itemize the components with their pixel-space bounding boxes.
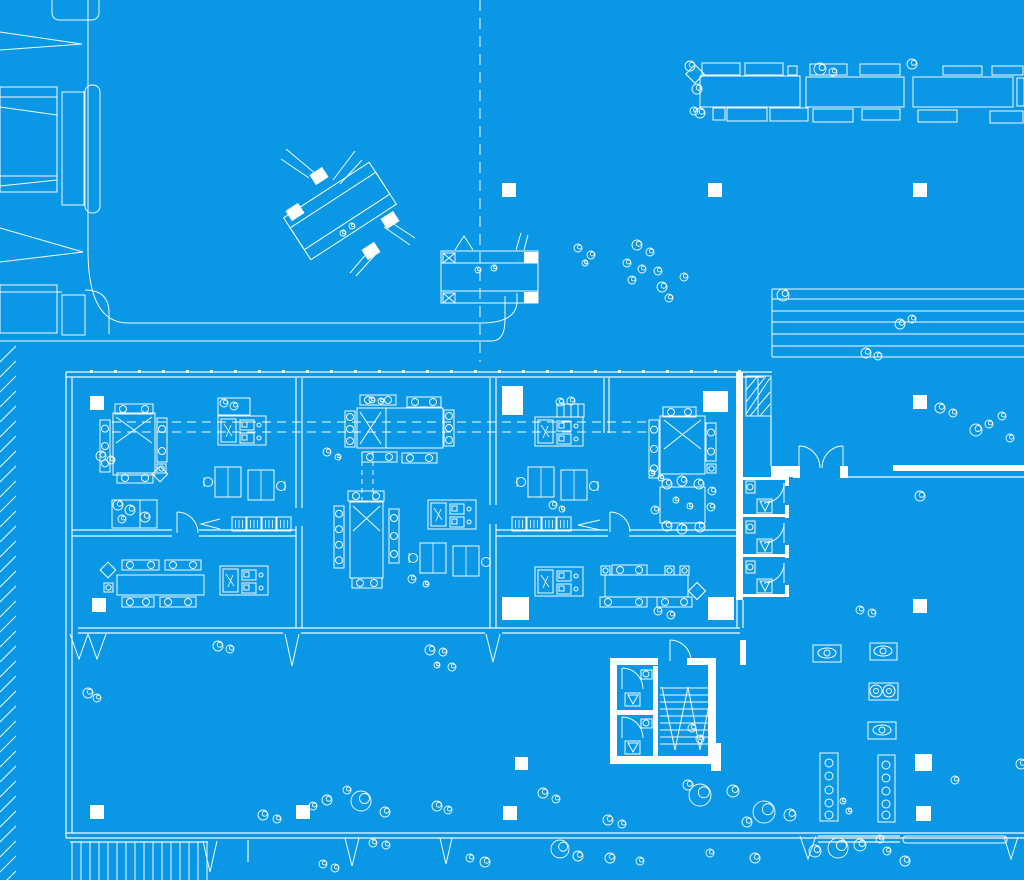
layer-wc-door-arcs: [764, 523, 784, 543]
layer-core-walls: [502, 597, 529, 620]
layer-chair-strips: [347, 414, 354, 421]
layer-trees: [322, 861, 326, 865]
layer-benches: [143, 599, 150, 606]
layer-trees: [832, 69, 836, 73]
layer-desk-units: [467, 507, 471, 511]
layer-benches: [636, 599, 643, 606]
layer-trees: [690, 504, 693, 507]
layer-left-edge-hatch: [0, 571, 16, 587]
layer-wall-ticks: [522, 370, 525, 373]
layer-trees: [843, 799, 846, 802]
layer-planter-rects: [713, 108, 725, 120]
layer-planter-rects: [745, 63, 783, 75]
layer-trees: [683, 274, 687, 278]
layer-trees: [699, 523, 704, 528]
layer-trees: [954, 777, 958, 781]
layer-benches: [127, 599, 134, 606]
layer-trees: [631, 277, 635, 281]
layer-trees: [96, 695, 100, 699]
layer-wall-ticks: [618, 370, 621, 373]
layer-stair-hatch-lines: [760, 404, 770, 416]
layer-rotated-picnic-legs: [286, 149, 316, 174]
layer-core-walls: [893, 465, 1024, 471]
layer-trees: [639, 858, 643, 862]
layer-trees: [542, 789, 547, 794]
layer-door-wedges: [201, 519, 220, 529]
layer-benches: [426, 455, 433, 462]
layer-left-edge-hatch: [0, 751, 16, 767]
layer-left-edge-hatch: [0, 856, 16, 872]
layer-left-edge-hatch: [0, 451, 16, 467]
layer-trees: [384, 808, 389, 813]
layer-columns: [502, 183, 516, 197]
layer-benches: [681, 599, 688, 606]
layer-trees: [904, 857, 909, 862]
layer-left-edge-hatch: [0, 706, 16, 722]
layer-wall-ticks: [402, 370, 405, 373]
layer-left-edge-hatch: [0, 736, 16, 752]
layer-single-seats: [603, 568, 608, 573]
layer-desk-units: [259, 586, 263, 590]
layer-columns: [913, 183, 927, 197]
layer-single-seats: [106, 585, 111, 590]
layer-wall-ticks: [450, 370, 453, 373]
layer-desk-units: [452, 519, 457, 524]
layer-rack-circles: [882, 787, 890, 795]
layer-trees: [1001, 413, 1005, 417]
layer-rack-circles: [882, 811, 890, 819]
layer-core-walls: [840, 466, 848, 478]
layer-chair-strips: [446, 413, 453, 420]
layer-wall-ticks: [282, 370, 285, 373]
layer-desk-units: [244, 585, 249, 590]
layer-table-rects: [117, 575, 204, 595]
layer-chair-strips: [336, 541, 343, 548]
layer-desk-units: [574, 587, 578, 591]
layer-left-edge-hatch: [0, 796, 16, 812]
layer-trees: [577, 245, 581, 249]
layer-desk-units: [226, 425, 231, 437]
layer-trees: [372, 840, 376, 844]
layer-trees: [346, 787, 350, 791]
layer-truck-lines: [0, 180, 57, 186]
layer-trees: [636, 241, 641, 246]
layer-wc-door-arcs: [764, 563, 784, 583]
layer-trees: [129, 506, 134, 511]
layer-trees: [552, 502, 556, 506]
layer-benches: [373, 493, 380, 500]
layer-columns: [296, 805, 310, 819]
layer-rotated-picnic-legs: [340, 160, 362, 184]
layer-core-walls: [793, 466, 800, 478]
layer-chair-strips: [347, 426, 354, 433]
layer-wall-ticks: [354, 370, 357, 373]
layer-benches: [357, 580, 364, 587]
layer-wall-ticks: [90, 370, 93, 373]
layer-single-seats: [709, 466, 714, 471]
layer-rack-circles: [882, 800, 890, 808]
layer-rack-circles: [880, 648, 886, 654]
layer-core-walls: [771, 466, 795, 477]
layer-rack-circles: [825, 772, 833, 780]
layer-left-edge-hatch: [0, 616, 16, 632]
layer-trees: [609, 854, 614, 859]
layer-benches: [386, 454, 393, 461]
layer-wall-ticks: [666, 370, 669, 373]
layer-trees: [654, 507, 658, 511]
layer-truck-bodies: [62, 295, 85, 335]
layer-planter-rects: [806, 77, 904, 107]
layer-trees: [789, 811, 795, 817]
layer-benches: [636, 567, 643, 574]
layer-trees: [494, 266, 497, 269]
layer-left-edge-hatch: [0, 766, 16, 782]
layer-benches: [617, 567, 624, 574]
layer-table-rects: [660, 416, 705, 474]
layer-benches: [371, 580, 378, 587]
layer-benches: [122, 560, 159, 570]
layer-wall-ticks: [570, 370, 573, 373]
layer-picnic-legs: [455, 236, 473, 250]
layer-rack-circles: [887, 689, 892, 694]
layer-benches: [430, 399, 437, 406]
layer-entry-door-arcs: [799, 446, 820, 468]
layer-left-edge-hatch: [0, 811, 16, 827]
layer-planter-rects: [770, 108, 808, 121]
layer-truck-lines: [0, 228, 83, 252]
layer-benches: [160, 597, 196, 607]
layer-benches: [142, 406, 149, 413]
layer-trees: [681, 477, 686, 482]
layer-planter-rects: [813, 109, 853, 122]
layer-desk-units: [574, 424, 578, 428]
layer-wall-ticks: [690, 370, 693, 373]
layer-desk-units: [242, 435, 247, 440]
layer-trees: [849, 809, 852, 812]
layer-trees: [899, 320, 904, 325]
layer-trees: [754, 854, 759, 859]
layer-trees: [698, 480, 703, 485]
layer-planter-rects: [918, 110, 957, 122]
layer-desk-units: [257, 423, 261, 427]
layer-core-walls: [708, 597, 734, 620]
layer-chair-strips: [391, 515, 398, 522]
layer-door-v-marks: [1004, 837, 1018, 859]
layer-planter-ellipses: [883, 685, 895, 697]
layer-benches: [353, 493, 360, 500]
layer-trees: [577, 852, 582, 857]
layer-left-edge-hatch: [0, 496, 16, 512]
layer-rack-circles: [825, 799, 833, 807]
layer-stair-arrow: [662, 687, 712, 750]
layer-wall-ticks: [498, 370, 501, 373]
layer-wc-sink-circles: [643, 671, 649, 677]
layer-benches: [185, 599, 192, 606]
layer-door-v-marks: [70, 634, 88, 659]
layer-single-seats: [682, 568, 687, 573]
layer-stair-hatch-lines: [746, 376, 758, 390]
layer-table-rects: [112, 500, 157, 528]
layer-trees: [886, 848, 890, 852]
layer-chair-strips: [446, 425, 453, 432]
layer-left-edge-hatch: [0, 781, 16, 797]
layer-trees: [411, 576, 415, 580]
layer-truck-lines: [0, 107, 57, 115]
layer-wall-ticks: [114, 370, 117, 373]
layer-wall-ticks: [186, 370, 189, 373]
layer-desk-pairs: [277, 482, 286, 491]
layer-table-x-marks: [664, 420, 701, 449]
layer-trees: [551, 840, 569, 858]
layer-single-seats: [665, 566, 674, 575]
layer-left-edge-hatch: [0, 841, 16, 857]
layer-door-v-marks: [345, 838, 359, 866]
layer-left-edge-hatch: [0, 691, 16, 707]
layer-chair-strips: [336, 526, 343, 533]
layer-wall-ticks: [714, 370, 717, 373]
layer-trees: [939, 404, 944, 409]
layer-trees: [437, 663, 440, 666]
layer-benches: [165, 599, 172, 606]
layer-chair-strips: [336, 510, 343, 517]
layer-columns: [916, 806, 931, 821]
layer-road-curves: [0, 296, 505, 341]
layer-trees: [87, 689, 92, 694]
layer-rack-circles: [882, 761, 890, 769]
layer-trees: [911, 60, 916, 65]
layer-benches: [662, 599, 669, 606]
layer-table-x-marks: [443, 293, 455, 303]
layer-trees: [871, 610, 875, 614]
layer-planter-rects: [1017, 78, 1024, 106]
layer-benches: [142, 475, 149, 482]
layer-door-v-marks: [800, 836, 816, 859]
layer-core-walls: [703, 391, 728, 412]
layer-trees: [360, 794, 370, 804]
layer-wc-door-arcs: [622, 668, 643, 689]
layer-trees: [451, 664, 455, 668]
layer-wc-door-arcs: [764, 483, 784, 503]
layer-planter-rects: [990, 111, 1023, 123]
layer-desk-units: [574, 574, 578, 578]
layer-trees: [352, 224, 355, 227]
layer-trees: [699, 109, 704, 114]
layer-desk-pairs: [517, 478, 526, 487]
layer-trees: [661, 476, 664, 479]
layer-core-walls: [785, 545, 789, 558]
layer-chair-strips: [159, 426, 166, 433]
layer-trees: [1009, 435, 1013, 439]
layer-chair-strips: [159, 448, 166, 455]
layer-trees: [334, 865, 338, 869]
layer-trees: [100, 452, 105, 457]
layer-picnic-legs: [524, 235, 528, 250]
layer-trees: [676, 498, 679, 501]
layer-trees: [110, 457, 114, 461]
layer-benches: [407, 455, 414, 462]
layer-benches: [605, 599, 612, 606]
layer-left-edge-hatch: [0, 646, 16, 662]
layer-diamond-chairs: [100, 562, 116, 578]
layer-benches: [407, 397, 441, 407]
layer-left-edge-hatch: [0, 586, 16, 602]
layer-trees: [351, 791, 371, 811]
layer-wc-sink-circles: [747, 564, 753, 570]
layer-columns: [913, 395, 927, 409]
layer-columns: [515, 757, 528, 770]
layer-chair-strips: [708, 448, 715, 455]
layer-trees: [661, 283, 666, 288]
layer-door-v-marks: [486, 634, 500, 662]
layer-benches: [685, 409, 692, 416]
layer-chair-strips: [102, 425, 109, 432]
layer-trees: [782, 291, 788, 297]
layer-left-edge-hatch: [0, 556, 16, 572]
layer-trees: [626, 260, 630, 264]
layer-table-x-marks: [360, 412, 381, 444]
layer-left-edge-hatch: [0, 391, 16, 407]
layer-chair-strips: [391, 533, 398, 540]
layer-chair-strips: [708, 429, 715, 436]
layer-wall-ticks: [594, 370, 597, 373]
layer-planter-rects: [913, 77, 1013, 107]
layer-planter-rects: [700, 76, 800, 107]
layer-chair-strips: [102, 443, 109, 450]
layer-wall-ticks: [234, 370, 237, 373]
layer-benches: [148, 562, 155, 569]
layer-benches: [170, 562, 177, 569]
layer-table-x-marks: [443, 253, 455, 263]
layer-trees: [381, 399, 384, 402]
layer-trees: [859, 607, 863, 611]
layer-desk-units: [559, 573, 564, 578]
layer-benches: [127, 562, 134, 569]
layer-table-x-marks: [116, 417, 152, 443]
layer-chair-strips: [391, 551, 398, 558]
layer-picnic-legs: [516, 233, 521, 250]
layer-door-v-marks: [285, 634, 299, 666]
layer-trees: [559, 842, 568, 851]
layer-trees: [710, 504, 714, 508]
layer-rack-circles: [824, 650, 830, 656]
layer-rotated-picnic-blocks: [361, 242, 380, 260]
layer-trees: [144, 513, 149, 518]
layer-desk-units: [559, 586, 564, 591]
layer-trees: [559, 399, 563, 403]
layer-rotated-picnic-legs: [333, 151, 355, 180]
layer-table-rects: [357, 408, 443, 448]
layer-left-edge-hatch: [0, 511, 16, 527]
layer-trees: [590, 252, 594, 256]
layer-benches: [367, 454, 374, 461]
layer-trees: [607, 816, 612, 821]
layer-desk-units: [244, 572, 249, 577]
layer-rack-circles: [882, 774, 890, 782]
layer-trees: [338, 455, 341, 458]
layer-rotated-picnic-legs: [384, 227, 410, 245]
layer-trees: [753, 801, 775, 823]
layer-core-walls: [785, 477, 789, 486]
layer-planter-rects: [943, 66, 982, 75]
layer-left-edge-hatch: [0, 826, 16, 842]
layer-left-edge-hatch: [0, 376, 16, 392]
layer-trees: [562, 507, 565, 510]
layer-entry-door-arcs: [177, 512, 198, 533]
layer-left-edge-hatch: [0, 721, 16, 737]
layer-wc-door-arcs: [622, 717, 643, 738]
layer-desk-units: [228, 575, 233, 587]
layer-wall-ticks: [426, 370, 429, 373]
layer-core-walls: [610, 756, 720, 764]
layer-chair-strips: [446, 437, 453, 444]
layer-trees: [436, 802, 441, 807]
layer-desk-pairs: [204, 478, 213, 487]
layer-desk-units: [259, 573, 263, 577]
layer-desk-units: [559, 423, 564, 428]
layer-left-edge-hatch: [0, 481, 16, 497]
layer-door-wedges: [578, 520, 600, 530]
layer-trees: [570, 398, 574, 402]
layer-desk-units: [242, 422, 247, 427]
layer-wall-ticks: [210, 370, 213, 373]
layer-trees: [555, 796, 559, 800]
layer-planter-rects: [702, 63, 740, 75]
layer-planter-ellipses: [870, 685, 882, 697]
layer-trees: [229, 646, 233, 650]
layer-left-edge-hatch: [0, 661, 16, 677]
layer-columns: [503, 806, 517, 820]
layer-rack-circles: [825, 811, 833, 819]
layer-benches: [657, 597, 692, 607]
layer-benches: [165, 560, 201, 570]
layer-trees: [447, 807, 451, 811]
layer-benches: [190, 562, 197, 569]
layer-left-edge-hatch: [0, 406, 16, 422]
layer-wc-sink-circles: [747, 524, 753, 530]
layer-left-edge-hatch: [0, 526, 16, 542]
layer-trees: [121, 516, 125, 520]
layer-wall-ticks: [378, 370, 381, 373]
layer-chair-strips: [651, 446, 658, 453]
layer-wall-ticks: [330, 370, 333, 373]
layer-planter-rects: [992, 66, 1023, 75]
layer-trees: [746, 818, 751, 823]
layer-chair-strips: [336, 557, 343, 564]
layer-trees: [326, 449, 330, 453]
layer-desk-units: [467, 520, 471, 524]
layer-trees: [819, 65, 825, 71]
layer-benches: [122, 475, 129, 482]
layer-wall-ticks: [306, 370, 309, 373]
layer-chair-strips: [157, 418, 167, 462]
layer-truck-bodies: [52, 0, 99, 20]
layer-trees: [919, 492, 924, 497]
layer-columns: [92, 598, 106, 612]
layer-bike-rack-rects: [903, 836, 1007, 843]
layer-left-edge-hatch: [0, 346, 16, 362]
layer-trees: [326, 796, 331, 801]
layer-trees: [814, 847, 820, 853]
layer-trees: [262, 811, 267, 816]
layer-trees: [952, 410, 956, 414]
layer-benches: [120, 406, 127, 413]
layer-core-walls: [743, 514, 789, 517]
layer-core-walls: [610, 658, 658, 665]
layer-rotated-picnic-legs: [389, 221, 415, 238]
layer-door-v-marks: [440, 838, 452, 864]
layer-wall-ticks: [162, 370, 165, 373]
layer-planter-rects: [727, 108, 767, 121]
